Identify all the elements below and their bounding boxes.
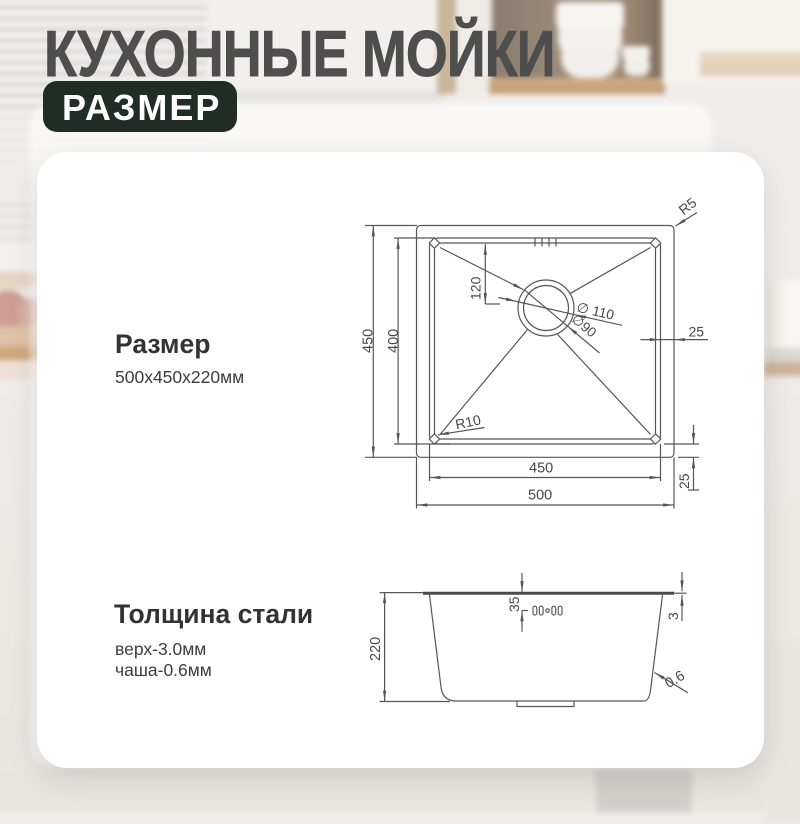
svg-text:R10: R10 xyxy=(454,411,483,432)
svg-text:450: 450 xyxy=(361,329,377,353)
svg-text:3: 3 xyxy=(665,612,681,620)
svg-text:0.6: 0.6 xyxy=(662,668,688,692)
svg-text:400: 400 xyxy=(386,329,402,353)
svg-text:220: 220 xyxy=(368,637,384,661)
svg-text:25: 25 xyxy=(676,473,692,489)
svg-text:500: 500 xyxy=(528,488,552,504)
svg-text:35: 35 xyxy=(506,596,522,612)
svg-text:25: 25 xyxy=(689,324,705,340)
svg-text:120: 120 xyxy=(468,276,484,300)
svg-text:R5: R5 xyxy=(675,194,699,218)
svg-text:450: 450 xyxy=(529,461,553,477)
